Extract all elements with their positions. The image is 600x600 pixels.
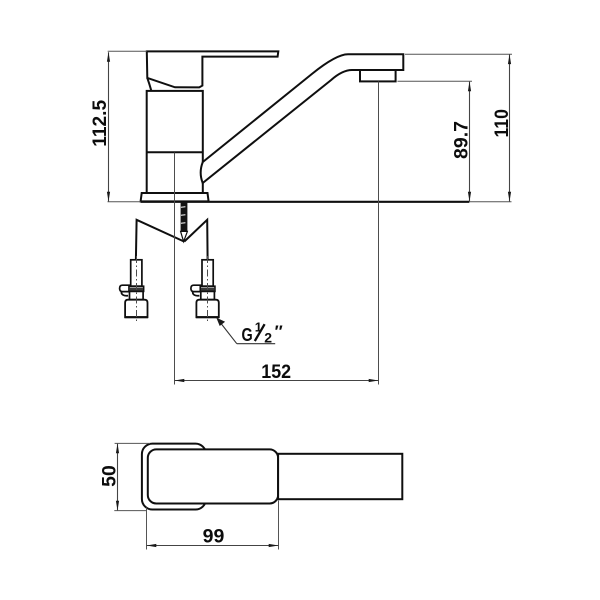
svg-text:″: ″: [275, 322, 283, 341]
svg-text:89.7: 89.7: [450, 121, 472, 159]
svg-text:152: 152: [261, 361, 291, 383]
svg-text:50: 50: [98, 465, 120, 487]
svg-text:99: 99: [203, 526, 225, 548]
svg-text:112.5: 112.5: [89, 100, 111, 147]
svg-text:2: 2: [264, 330, 272, 346]
svg-text:G: G: [242, 324, 253, 345]
svg-text:110: 110: [491, 109, 513, 138]
